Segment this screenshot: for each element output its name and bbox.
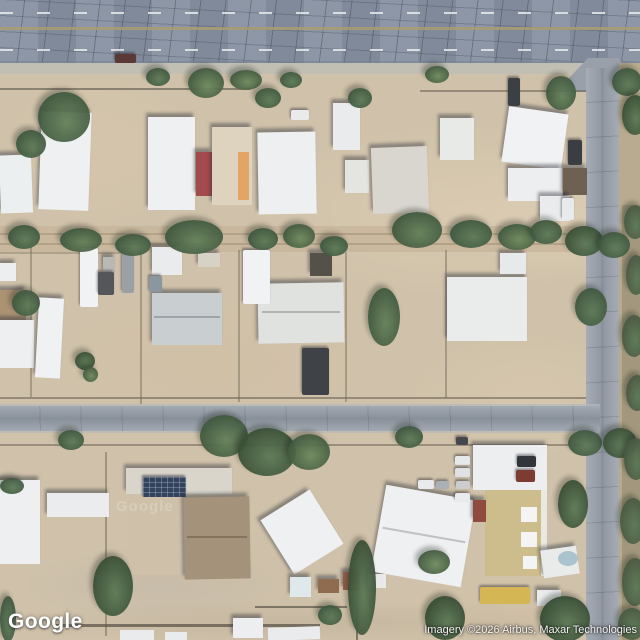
tan-building (485, 490, 547, 576)
tree (530, 220, 562, 244)
red-roof-building (196, 152, 212, 196)
roof-ridge (262, 311, 340, 313)
tree (395, 426, 423, 448)
shed (198, 253, 220, 267)
building (0, 320, 34, 368)
box-trailer (98, 272, 114, 295)
vehicle (508, 78, 520, 106)
van (291, 110, 309, 120)
building (257, 132, 316, 215)
brown-roof-house (183, 496, 250, 579)
vertical-road (586, 68, 619, 640)
tree (320, 236, 348, 256)
yellow-bus (480, 587, 530, 604)
highway-lane-dashes (0, 49, 640, 51)
building (501, 106, 568, 170)
tree (280, 72, 302, 88)
shed (440, 118, 474, 160)
fence-line (0, 252, 120, 254)
mobile-home (148, 117, 195, 210)
tree (38, 92, 90, 142)
tree (598, 232, 630, 258)
imagery-attribution: Imagery ©2026 Airbus, Maxar Technologies (424, 624, 637, 636)
highway (0, 0, 640, 63)
tree (255, 88, 281, 108)
car (455, 456, 470, 465)
roof-fragment (233, 618, 263, 638)
tree (575, 288, 607, 326)
roof-ridge (187, 536, 247, 538)
orange-roof-section (238, 152, 249, 200)
pool (558, 551, 578, 566)
tree (418, 550, 450, 574)
cross-street (0, 406, 600, 431)
tree (58, 430, 84, 450)
rv-trailer (80, 248, 98, 307)
tree (60, 228, 102, 252)
gabled-house (152, 293, 222, 345)
building (447, 277, 527, 341)
solar-panels (143, 477, 186, 498)
tree (348, 88, 372, 108)
center-house (257, 282, 344, 343)
brown-shed (318, 579, 339, 593)
tree (93, 556, 133, 616)
tree (283, 224, 315, 248)
tree (248, 228, 278, 250)
dark-shed (563, 168, 587, 195)
fence-line (0, 397, 586, 399)
car (418, 480, 434, 489)
tree (392, 212, 442, 248)
dark-shed (310, 253, 332, 276)
roof-ridge (154, 316, 220, 318)
tree (558, 480, 588, 528)
roof-fragment (165, 632, 187, 640)
roof-fragment (120, 630, 154, 640)
mobile-home (35, 297, 64, 378)
roof-fragment (268, 626, 320, 640)
fence-line (238, 250, 240, 402)
rv-trailer (243, 250, 270, 304)
road-shoulder (0, 63, 640, 74)
highway-lane-dashes (0, 12, 640, 14)
tree (368, 288, 400, 346)
skylight (521, 532, 537, 547)
tree (8, 225, 40, 249)
car (149, 276, 162, 292)
scrub (620, 498, 640, 544)
tree (568, 430, 602, 456)
car (456, 437, 468, 445)
tree (188, 68, 224, 98)
tree (83, 367, 98, 382)
building (0, 154, 33, 213)
car-on-highway (115, 54, 136, 63)
carport-building (473, 445, 547, 490)
tree (115, 234, 151, 256)
car (517, 456, 536, 467)
tree (450, 220, 492, 248)
tree (165, 220, 223, 254)
vehicle (562, 198, 574, 220)
google-logo[interactable]: Google (8, 610, 83, 634)
shed (500, 253, 526, 274)
tree (230, 70, 262, 90)
satellite-map-canvas[interactable]: Google Google Imagery ©2026 Airbus, Maxa… (0, 0, 640, 640)
tree (546, 76, 576, 110)
google-watermark-faint: Google (116, 498, 174, 515)
shed (345, 160, 369, 193)
shed (0, 263, 16, 281)
car (455, 493, 470, 502)
skylight (523, 556, 537, 569)
shed (290, 577, 311, 597)
fence-line (140, 248, 142, 404)
trailer (122, 250, 134, 293)
tree (12, 290, 40, 316)
car (456, 481, 470, 489)
carport (47, 493, 109, 517)
fence-line (345, 252, 347, 402)
car (436, 481, 449, 489)
shed (333, 103, 360, 150)
tree (348, 540, 376, 635)
tree (146, 68, 170, 86)
tree (288, 434, 330, 470)
tree (612, 68, 640, 96)
highway-median-line (0, 27, 640, 30)
scrub (622, 315, 640, 357)
tree (16, 130, 46, 158)
dark-trailer (302, 348, 329, 395)
tree (565, 226, 603, 256)
tree (0, 478, 24, 494)
red-shed (473, 500, 486, 522)
car (455, 468, 470, 477)
scrub (624, 205, 640, 239)
cross-street-edge (0, 431, 600, 433)
tree (318, 605, 342, 625)
scrub (626, 255, 640, 295)
car (516, 470, 535, 482)
skylight (521, 507, 537, 522)
cross-street-edge (0, 404, 600, 406)
building (371, 146, 429, 214)
tree (425, 66, 449, 83)
vehicle (568, 140, 582, 165)
